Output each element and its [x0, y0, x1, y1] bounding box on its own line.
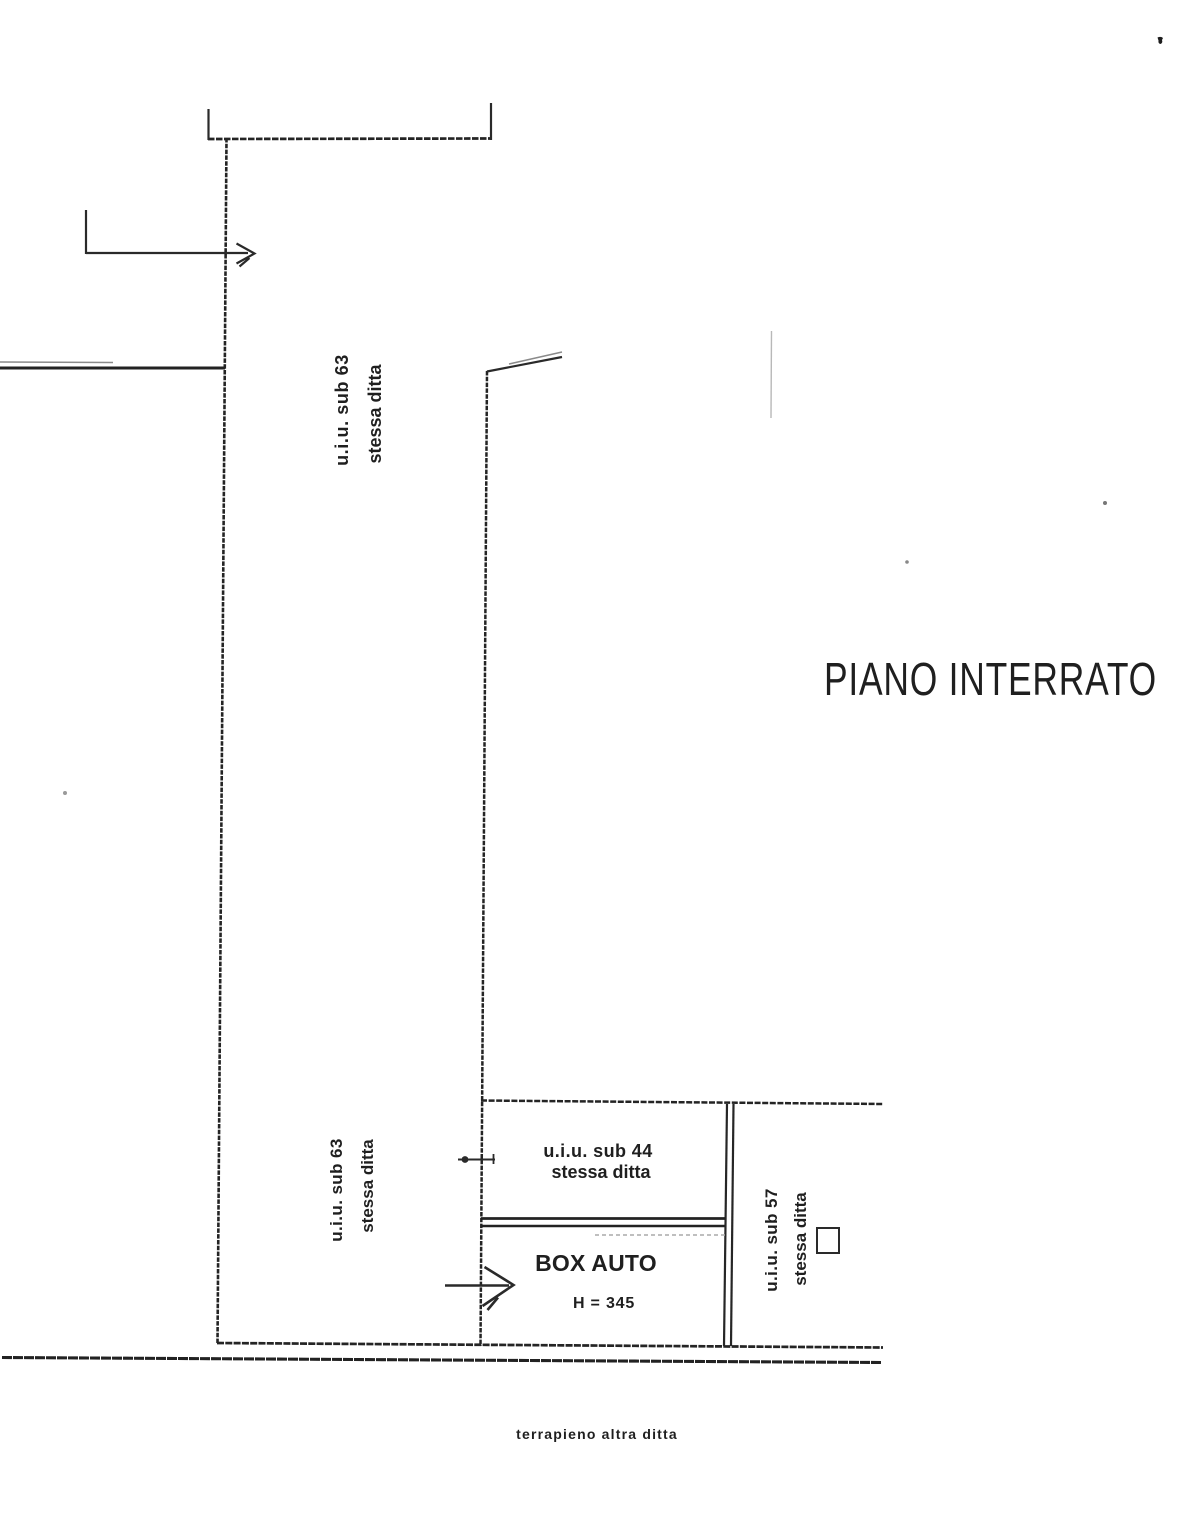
- svg-text:stessa ditta: stessa ditta: [551, 1162, 651, 1182]
- svg-text:PIANO INTERRATO: PIANO INTERRATO: [824, 654, 1157, 706]
- svg-text:u.i.u. sub 57: u.i.u. sub 57: [762, 1188, 781, 1291]
- svg-text:stessa ditta: stessa ditta: [358, 1139, 377, 1233]
- svg-text:H = 345: H = 345: [573, 1295, 635, 1312]
- svg-text:stessa ditta: stessa ditta: [365, 363, 385, 463]
- svg-text:stessa ditta: stessa ditta: [791, 1192, 810, 1286]
- svg-text:u.i.u. sub 44: u.i.u. sub 44: [543, 1141, 652, 1161]
- svg-text:terrapieno altra ditta: terrapieno altra ditta: [516, 1426, 678, 1442]
- svg-text:u.i.u. sub 63: u.i.u. sub 63: [327, 1138, 346, 1241]
- svg-text:BOX AUTO: BOX AUTO: [535, 1250, 657, 1276]
- svg-text:u.i.u. sub 63: u.i.u. sub 63: [332, 354, 352, 466]
